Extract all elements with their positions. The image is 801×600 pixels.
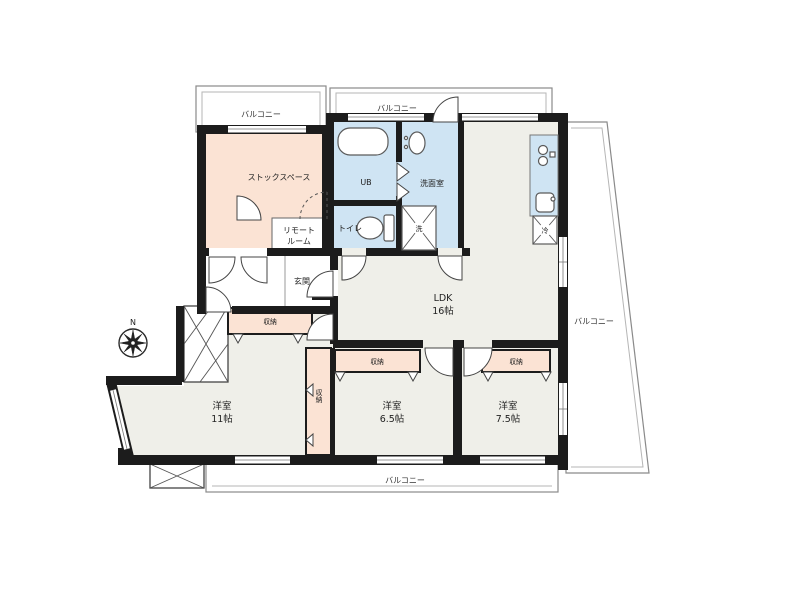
- unit-bath-label: UB: [360, 178, 371, 187]
- bottom-left-hatch: [150, 464, 204, 488]
- bedroom-west-label-2: 11帖: [211, 413, 233, 425]
- toilet: [357, 215, 394, 241]
- closet-center-label: 収納: [370, 357, 384, 366]
- balcony-right-label: バルコニー: [574, 317, 614, 326]
- bedroom-center-label-2: 6.5帖: [380, 413, 405, 425]
- bedroom-east-label-2: 7.5帖: [496, 413, 521, 425]
- bathtub: [338, 128, 388, 155]
- balcony-top-left-label: バルコニー: [241, 110, 281, 119]
- stairwell-hatch: [184, 306, 228, 382]
- laundry-label: 洗: [416, 224, 423, 233]
- washroom-label: 洗面室: [420, 178, 444, 188]
- entrance-label: 玄関: [294, 276, 310, 286]
- balcony-right: [566, 122, 649, 473]
- refrigerator-label: 冷: [542, 226, 549, 235]
- balcony-bottom: [206, 464, 558, 492]
- ldk-label-2: 16帖: [432, 305, 454, 317]
- floor-plan-drawing: バルコニー バルコニー バルコニー バルコニー ストックスペース リモート ルー…: [0, 0, 801, 600]
- kitchen-counter: [530, 135, 558, 216]
- remote-room-label-1: リモート: [283, 226, 315, 235]
- floor-plan: バルコニー バルコニー バルコニー バルコニー ストックスペース リモート ルー…: [0, 0, 801, 600]
- compass-rose: N: [119, 318, 147, 357]
- toilet-label: トイレ: [338, 224, 362, 233]
- bedroom-center-label-1: 洋室: [382, 400, 401, 412]
- closet-west-label: 収納: [263, 317, 277, 326]
- ldk-label-1: LDK: [434, 293, 454, 304]
- remote-room-label-2: ルーム: [287, 237, 311, 246]
- stock-space-label: ストックスペース: [248, 173, 311, 182]
- closet-west-side-label: 収納: [314, 389, 322, 404]
- balcony-top-label: バルコニー: [377, 104, 417, 113]
- balcony-bottom-label: バルコニー: [385, 476, 425, 485]
- bedroom-east-label-1: 洋室: [498, 400, 517, 412]
- closet-east-label: 収納: [509, 357, 523, 366]
- compass-north-label: N: [130, 318, 136, 327]
- bedroom-west-label-1: 洋室: [212, 400, 231, 412]
